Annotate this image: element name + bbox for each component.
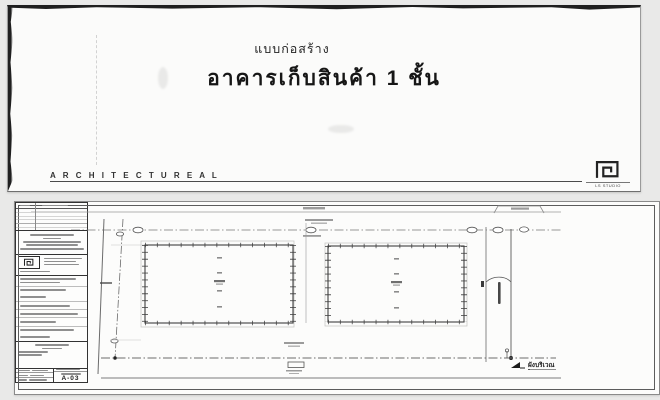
cover-title-group: แบบก่อสร้าง อาคารเก็บสินค้า 1 ชั้น <box>8 39 640 95</box>
discipline-label: A R C H I T E C T U R E A L <box>50 171 219 180</box>
scan-artifact <box>328 125 354 133</box>
cover-subtitle: แบบก่อสร้าง <box>8 39 576 59</box>
center-division <box>303 223 321 323</box>
torn-paper-edge-left <box>8 7 13 191</box>
ls-studio-logo: LS STUDIO <box>586 159 630 189</box>
illegible-text-line <box>20 205 30 207</box>
site-plan-sheet: ผังบริเวณ <box>14 201 660 395</box>
building-right <box>325 243 467 326</box>
site-plan-drawing <box>15 202 659 394</box>
footer-rule <box>50 181 582 183</box>
revision-table <box>16 203 87 231</box>
torn-paper-edge-top <box>8 6 640 10</box>
revision-table-divider <box>35 203 36 230</box>
north-arrow-icon <box>511 362 525 370</box>
bottom-boundary-line <box>101 342 561 378</box>
cover-title: อาคารเก็บสินค้า 1 ชั้น <box>8 62 640 95</box>
plan-caption-group: ผังบริเวณ <box>511 361 556 370</box>
ls-monogram-icon <box>589 159 627 181</box>
left-boundary <box>98 219 144 374</box>
right-boundary-dimension <box>481 227 513 362</box>
cover-sheet: แบบก่อสร้าง อาคารเก็บสินค้า 1 ชั้น A R C… <box>7 5 641 192</box>
revision-table-rows <box>16 209 87 230</box>
ls-studio-caption: LS STUDIO <box>586 182 630 189</box>
road-top-line <box>31 206 561 224</box>
scale-note-line <box>530 369 556 370</box>
boundary-grid-line <box>71 227 561 233</box>
building-left <box>141 241 294 327</box>
illegible-text-line <box>42 205 68 207</box>
